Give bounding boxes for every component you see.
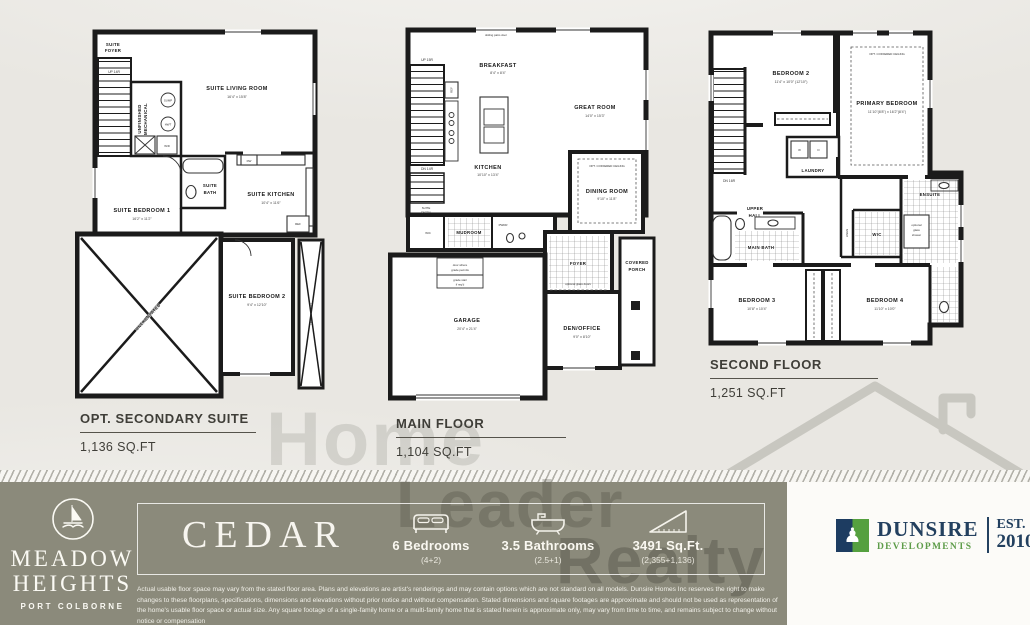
p2-dining-label: DINING ROOM — [586, 189, 628, 195]
p3-main-bath-label: MAIN BATH — [748, 245, 775, 250]
model-name: CEDAR — [182, 513, 346, 557]
p2-den-label: DEN/OFFICE — [563, 326, 600, 332]
p1-up-label: UP 14R — [108, 70, 120, 74]
developer-division: DEVELOPMENTS — [877, 542, 979, 552]
p3-bed3-label: BEDROOM 3 — [739, 298, 776, 304]
bathtub-fixture — [713, 216, 731, 260]
p1-ref-label: REF — [295, 222, 301, 226]
square-footage-breakdown: (2,355+1,136) — [612, 555, 724, 565]
p2-up-label: UP 15R — [421, 58, 433, 62]
p3-bed3-dims: 10'8" x 10'4" — [747, 307, 767, 311]
bathrooms-breakdown: (2.5+1) — [498, 555, 598, 565]
sink-fixture — [519, 233, 525, 239]
p2-porch-label-2: PORCH — [628, 267, 645, 272]
p2-stairs: UP 15R DN 14R SUITE ENTRY — [410, 58, 444, 215]
developer-panel — [787, 482, 1030, 625]
dunsire-pawn-icon: ♟ — [836, 519, 869, 552]
main-floor-floorplan: UP 15R DN 14R SUITE ENTRY sliding patio … — [388, 25, 670, 403]
brand-location: PORT COLBORNE — [10, 602, 135, 611]
brand-name-line1: MEADOW — [10, 547, 135, 572]
bathrooms-stat: 3.5 Bathrooms (2.5+1) — [498, 508, 598, 565]
p1-stairs: UP 14R — [98, 58, 131, 156]
p2-garage-dims: 20'4" x 21'4" — [457, 327, 477, 331]
porch-post — [631, 301, 640, 310]
p2-note-2: grade permits — [451, 268, 469, 272]
secondary-suite-sqft: 1,136 SQ.FT — [80, 440, 256, 454]
p1-bed2-dims: 9'4" x 12'10" — [247, 303, 267, 307]
toilet-fixture — [940, 302, 949, 313]
p1-mech-label-1: UNFINISHED — [137, 104, 142, 133]
bed-icon — [385, 508, 477, 535]
p2-foyer-label: FOYER — [570, 261, 587, 266]
p3-bed4-dims: 11'10" x 10'0" — [874, 307, 896, 311]
logo-divider — [987, 517, 989, 553]
p2-foyer: FOYER optional glass doors — [549, 236, 608, 290]
p3-shower-note-2: glass — [913, 228, 920, 232]
established-year: 2010 — [997, 532, 1030, 553]
main-floor-sqft: 1,104 SQ.FT — [396, 445, 566, 459]
p3-primary-label: PRIMARY BEDROOM — [856, 101, 917, 107]
developer-name: DUNSIRE — [877, 519, 979, 540]
square-footage-stat: 3491 Sq.Ft. (2,355+1,136) — [612, 508, 724, 565]
p2-entry-label-1: SUITE — [422, 206, 431, 210]
p2-note-3: grade stair — [453, 278, 467, 282]
p2-dn-label: DN 14R — [421, 167, 434, 171]
p3-w-label: W — [798, 148, 801, 152]
porch-post — [631, 351, 640, 360]
p1-living-dims: 16'4" x 15'8" — [227, 95, 247, 99]
secondary-suite-caption: OPT. SECONDARY SUITE 1,136 SQ.FT — [80, 411, 256, 454]
flyer-page: Home UP 14R UNFINISHED MECHANICAL SUMP — [0, 0, 1030, 625]
p2-patio-door-note: sliding patio door — [485, 33, 507, 37]
p2-great-room-label: GREAT ROOM — [574, 105, 615, 111]
p3-shower-note-1: optional — [911, 223, 921, 227]
p1-bed1-label: SUITE BEDROOM 1 — [113, 208, 170, 214]
p2-ref-label: REF — [450, 87, 454, 93]
p2-den-dims: 9'0" x 8'10" — [573, 335, 591, 339]
hwt-label: HWT — [165, 123, 172, 127]
p3-wic: WIC — [855, 212, 899, 255]
p1-living-label: SUITE LIVING ROOM — [206, 86, 268, 92]
p1-kitchen-label: SUITE KITCHEN — [247, 192, 294, 198]
p3-dn-label: DN 16R — [723, 179, 736, 183]
p1-bed1-dims: 16'2" x 11'2" — [132, 217, 152, 221]
p1-bath-label-2: BATH — [204, 190, 217, 195]
p1-foyer-label-1: SUITE — [106, 42, 120, 47]
p3-bed2-dims: 11'4" x 10'0" (12'10") — [775, 80, 808, 84]
p3-linen-label: LINEN — [845, 229, 849, 238]
p1-kitchen-dims: 10'4" x 11'6" — [261, 201, 281, 205]
sink-fixture — [768, 220, 778, 226]
square-footage: 3491 Sq.Ft. — [612, 538, 724, 553]
p3-d-label: D — [817, 148, 819, 152]
p1-wd-label: W/D — [164, 144, 170, 148]
bedrooms-count: 6 Bedrooms — [385, 538, 477, 553]
p3-primary-dims: 11'10"(8'8") x 16'2"(8'4") — [868, 110, 906, 114]
garage-door — [416, 393, 520, 401]
second-floor-sqft: 1,251 SQ.FT — [710, 386, 878, 400]
p2-coffered-note: OPT. COFFERED CEILING — [589, 164, 625, 168]
p2-kitchen-dims: 10'10" x 13'4" — [477, 173, 499, 177]
p1-mech-label-2: MECHANICAL — [143, 103, 148, 135]
p3-bed2-label: BEDROOM 2 — [773, 71, 810, 77]
hatched-ribbon-divider — [0, 470, 1030, 482]
established-label: EST. — [997, 517, 1030, 532]
p2-breakfast-label: BREAKFAST — [479, 63, 516, 69]
bedrooms-breakdown: (4+2) — [385, 555, 477, 565]
dunsire-logo: ♟ DUNSIRE DEVELOPMENTS EST. 2010 — [836, 517, 1030, 553]
p2-note-1: door where — [453, 263, 468, 267]
p2-note-4: if req'd — [456, 283, 465, 287]
p2-entry-label-2: ENTRY — [421, 211, 431, 215]
p2-great-room-dims: 14'0" x 15'3" — [585, 114, 605, 118]
bedrooms-stat: 6 Bedrooms (4+2) — [385, 508, 477, 565]
p1-bed2-label: SUITE BEDROOM 2 — [228, 294, 285, 300]
p3-coffered-note: OPT. COFFERED CEILING — [869, 52, 905, 56]
second-floor-title: SECOND FLOOR — [710, 357, 878, 379]
second-floor-caption: SECOND FLOOR 1,251 SQ.FT — [710, 357, 878, 400]
second-floor-floorplan: DN 16R BEDROOM 2 11'4" x 10'0" (12'10") … — [703, 25, 985, 347]
toilet-fixture — [736, 219, 745, 230]
toilet-fixture — [507, 234, 514, 243]
p3-wic-label: WIC — [872, 232, 881, 237]
main-floor-title: MAIN FLOOR — [396, 416, 566, 438]
bathtub-icon — [498, 508, 598, 535]
sump-label: SUMP — [164, 99, 172, 103]
p1-bath-label-1: SUITE — [203, 183, 217, 188]
p2-wic-label: WIC — [425, 231, 431, 235]
p3-stairs: DN 16R — [713, 67, 745, 183]
p2-garage-label: GARAGE — [454, 318, 481, 324]
p1-foyer-label-2: FOYER — [105, 48, 122, 53]
p1-unexcavated2-label: UNEXCAVATED — [309, 303, 313, 324]
sailboat-lighthouse-icon — [50, 496, 96, 542]
p3-bed4-label: BEDROOM 4 — [867, 298, 904, 304]
legal-disclaimer: Actual usable floor space may vary from … — [137, 585, 780, 625]
sink-fixture — [939, 183, 949, 189]
p2-glass-doors-note: optional glass doors — [565, 282, 591, 286]
p3-ensuite-label: ENSUITE — [920, 192, 941, 197]
main-floor-caption: MAIN FLOOR 1,104 SQ.FT — [396, 416, 566, 459]
p3-laundry-label: LAUNDRY — [802, 168, 825, 173]
secondary-suite-floorplan: UP 14R UNFINISHED MECHANICAL SUMP HWT W/… — [75, 28, 325, 400]
p1-dw-label: DW — [247, 159, 252, 163]
brand-name-line2: HEIGHTS — [10, 572, 135, 597]
area-ruler-icon — [612, 508, 724, 535]
p2-mudroom-label: MUDROOM — [456, 230, 481, 235]
toilet-fixture — [186, 186, 196, 199]
p2-pwdr-label: PWDR — [499, 223, 508, 227]
p2-breakfast-dims: 8'4" x 8'4" — [490, 71, 506, 75]
p2-kitchen-label: KITCHEN — [474, 165, 501, 171]
p2-porch-label-1: COVERED — [625, 260, 648, 265]
p3-shower-note-3: shower — [912, 233, 921, 237]
secondary-suite-title: OPT. SECONDARY SUITE — [80, 411, 256, 433]
p2-dining-dims: 9'10" x 11'8" — [597, 197, 617, 201]
p3-upper-hall-label-1: UPPER — [747, 206, 764, 211]
meadow-heights-logo: MEADOW HEIGHTS PORT COLBORNE — [10, 496, 135, 611]
bathtub-fixture — [183, 159, 223, 173]
bathrooms-count: 3.5 Bathrooms — [498, 538, 598, 553]
